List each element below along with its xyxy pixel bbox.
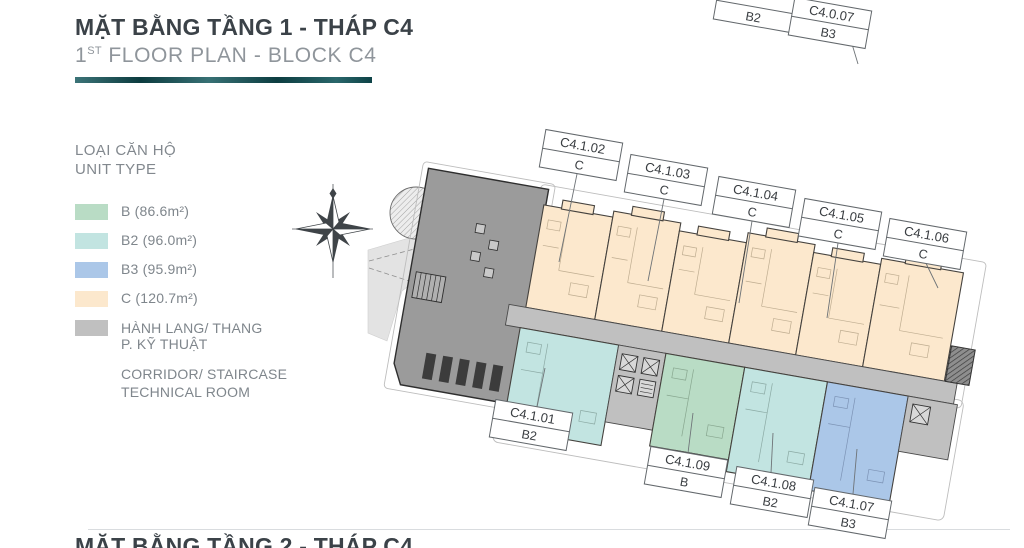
elevator-core-right — [898, 396, 957, 460]
unit-type-label: B2 — [761, 494, 779, 510]
callout-c4-1-05: C4.1.05 C — [798, 199, 881, 250]
unit-type-label: B2 — [744, 9, 762, 25]
compass-rose-icon — [292, 184, 373, 278]
callout-c4-1-04: C4.1.04 C — [712, 177, 795, 228]
callout-c4-1-02: C4.1.02 C — [539, 130, 622, 181]
callout-c4-0-07: C4.0.07 B3 — [788, 0, 871, 48]
floor-plan-drawing: C4.1.02 C C4.1.03 C C4.1.04 C C4.1.05 C … — [0, 0, 1024, 548]
unit-type-label: B3 — [819, 25, 837, 41]
unit-type-label: B2 — [520, 427, 538, 443]
compass-cardinal-points — [296, 196, 370, 262]
callout-cut-b2: B2 — [713, 0, 796, 32]
callout-c4-1-03: C4.1.03 C — [624, 155, 707, 206]
floor-plan-page: MẶT BẰNG TẦNG 1 - THÁP C4 1ST FLOOR PLAN… — [0, 0, 1024, 548]
unit-type-label: B3 — [839, 515, 857, 531]
